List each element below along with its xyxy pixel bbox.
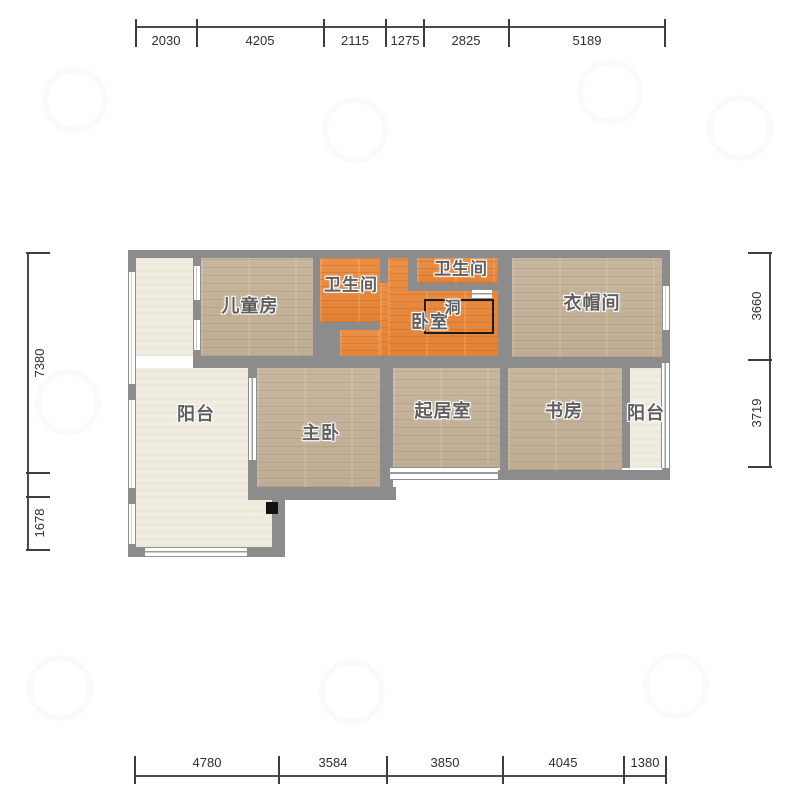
watermark-logo <box>27 655 93 721</box>
watermark-logo <box>319 659 385 725</box>
dim-value-left: 7380 <box>32 333 48 393</box>
dim-value-right: 3719 <box>749 383 765 443</box>
watermark-logo <box>42 67 108 133</box>
watermark-logo <box>707 95 773 161</box>
wall <box>498 258 512 357</box>
wall <box>500 368 508 470</box>
window <box>145 547 247 557</box>
floor-balcony-left-upper <box>136 258 193 356</box>
dim-tick-top <box>664 19 666 47</box>
dim-tick-bottom <box>278 756 280 784</box>
wall <box>340 322 380 330</box>
dim-tick-bottom <box>386 756 388 784</box>
room-label-balcony-right: 阳台 <box>627 399 665 425</box>
watermark-logo <box>643 653 709 719</box>
dim-value-top: 4205 <box>230 33 290 49</box>
wall <box>193 356 498 368</box>
room-label-bathroom-left: 卫生间 <box>324 271 378 296</box>
dim-tick-top <box>508 19 510 47</box>
wall <box>380 258 388 283</box>
dim-tick-right <box>748 252 772 254</box>
dim-value-top: 5189 <box>557 33 617 49</box>
dim-tick-bottom <box>502 756 504 784</box>
wall <box>248 487 396 500</box>
dim-tick-left <box>26 472 50 474</box>
watermark-logo <box>577 59 643 125</box>
window <box>248 378 257 460</box>
column-marker <box>266 502 278 514</box>
dim-value-top: 1275 <box>375 33 435 49</box>
room-label-balcony-left: 阳台 <box>177 400 215 426</box>
dim-tick-right <box>748 359 772 361</box>
dim-value-right: 3660 <box>749 276 765 336</box>
wall <box>128 250 670 258</box>
dim-tick-left <box>26 252 50 254</box>
window <box>472 289 492 299</box>
window <box>128 504 136 544</box>
dim-line-left <box>27 253 29 550</box>
wall <box>313 258 320 322</box>
dim-value-bottom: 3850 <box>415 755 475 771</box>
room-label-living-room: 起居室 <box>415 397 472 423</box>
window <box>128 272 136 384</box>
room-label-cloakroom: 衣帽间 <box>564 289 621 315</box>
window <box>193 266 201 300</box>
room-label-children-room: 儿童房 <box>222 292 279 318</box>
floor-balcony-left-lower <box>136 368 248 547</box>
room-label-master-bedroom: 主卧 <box>302 419 340 445</box>
dim-tick-right <box>748 466 772 468</box>
dim-value-bottom: 4780 <box>177 755 237 771</box>
room-label-bedroom: 卧室 <box>411 308 449 334</box>
watermark-logo <box>322 97 388 163</box>
floor-plan-page: { "document": { "type": "apartment-floor… <box>0 0 800 800</box>
room-label-hole: 洞 <box>444 294 461 318</box>
floor-bedroom-door-strip <box>380 283 388 356</box>
dim-value-top: 2825 <box>436 33 496 49</box>
dim-tick-bottom <box>134 756 136 784</box>
window <box>128 400 136 488</box>
dim-value-bottom: 4045 <box>533 755 593 771</box>
room-label-bathroom-right: 卫生间 <box>434 255 488 280</box>
dim-line-top <box>136 26 665 28</box>
dim-value-bottom: 1380 <box>615 755 675 771</box>
floor-plan-canvas: 儿童房卫生间卫生间卧室洞衣帽间阳台主卧起居室书房阳台20304205211512… <box>0 0 800 800</box>
dim-line-bottom <box>135 775 666 777</box>
dim-tick-top <box>196 19 198 47</box>
window <box>193 320 201 350</box>
dim-value-bottom: 3584 <box>303 755 363 771</box>
dim-value-left: 1678 <box>32 493 48 553</box>
wall <box>498 357 662 368</box>
dim-value-top: 2030 <box>136 33 196 49</box>
window <box>390 467 498 480</box>
window <box>662 286 670 330</box>
room-label-study: 书房 <box>545 397 583 423</box>
wall <box>408 258 417 283</box>
